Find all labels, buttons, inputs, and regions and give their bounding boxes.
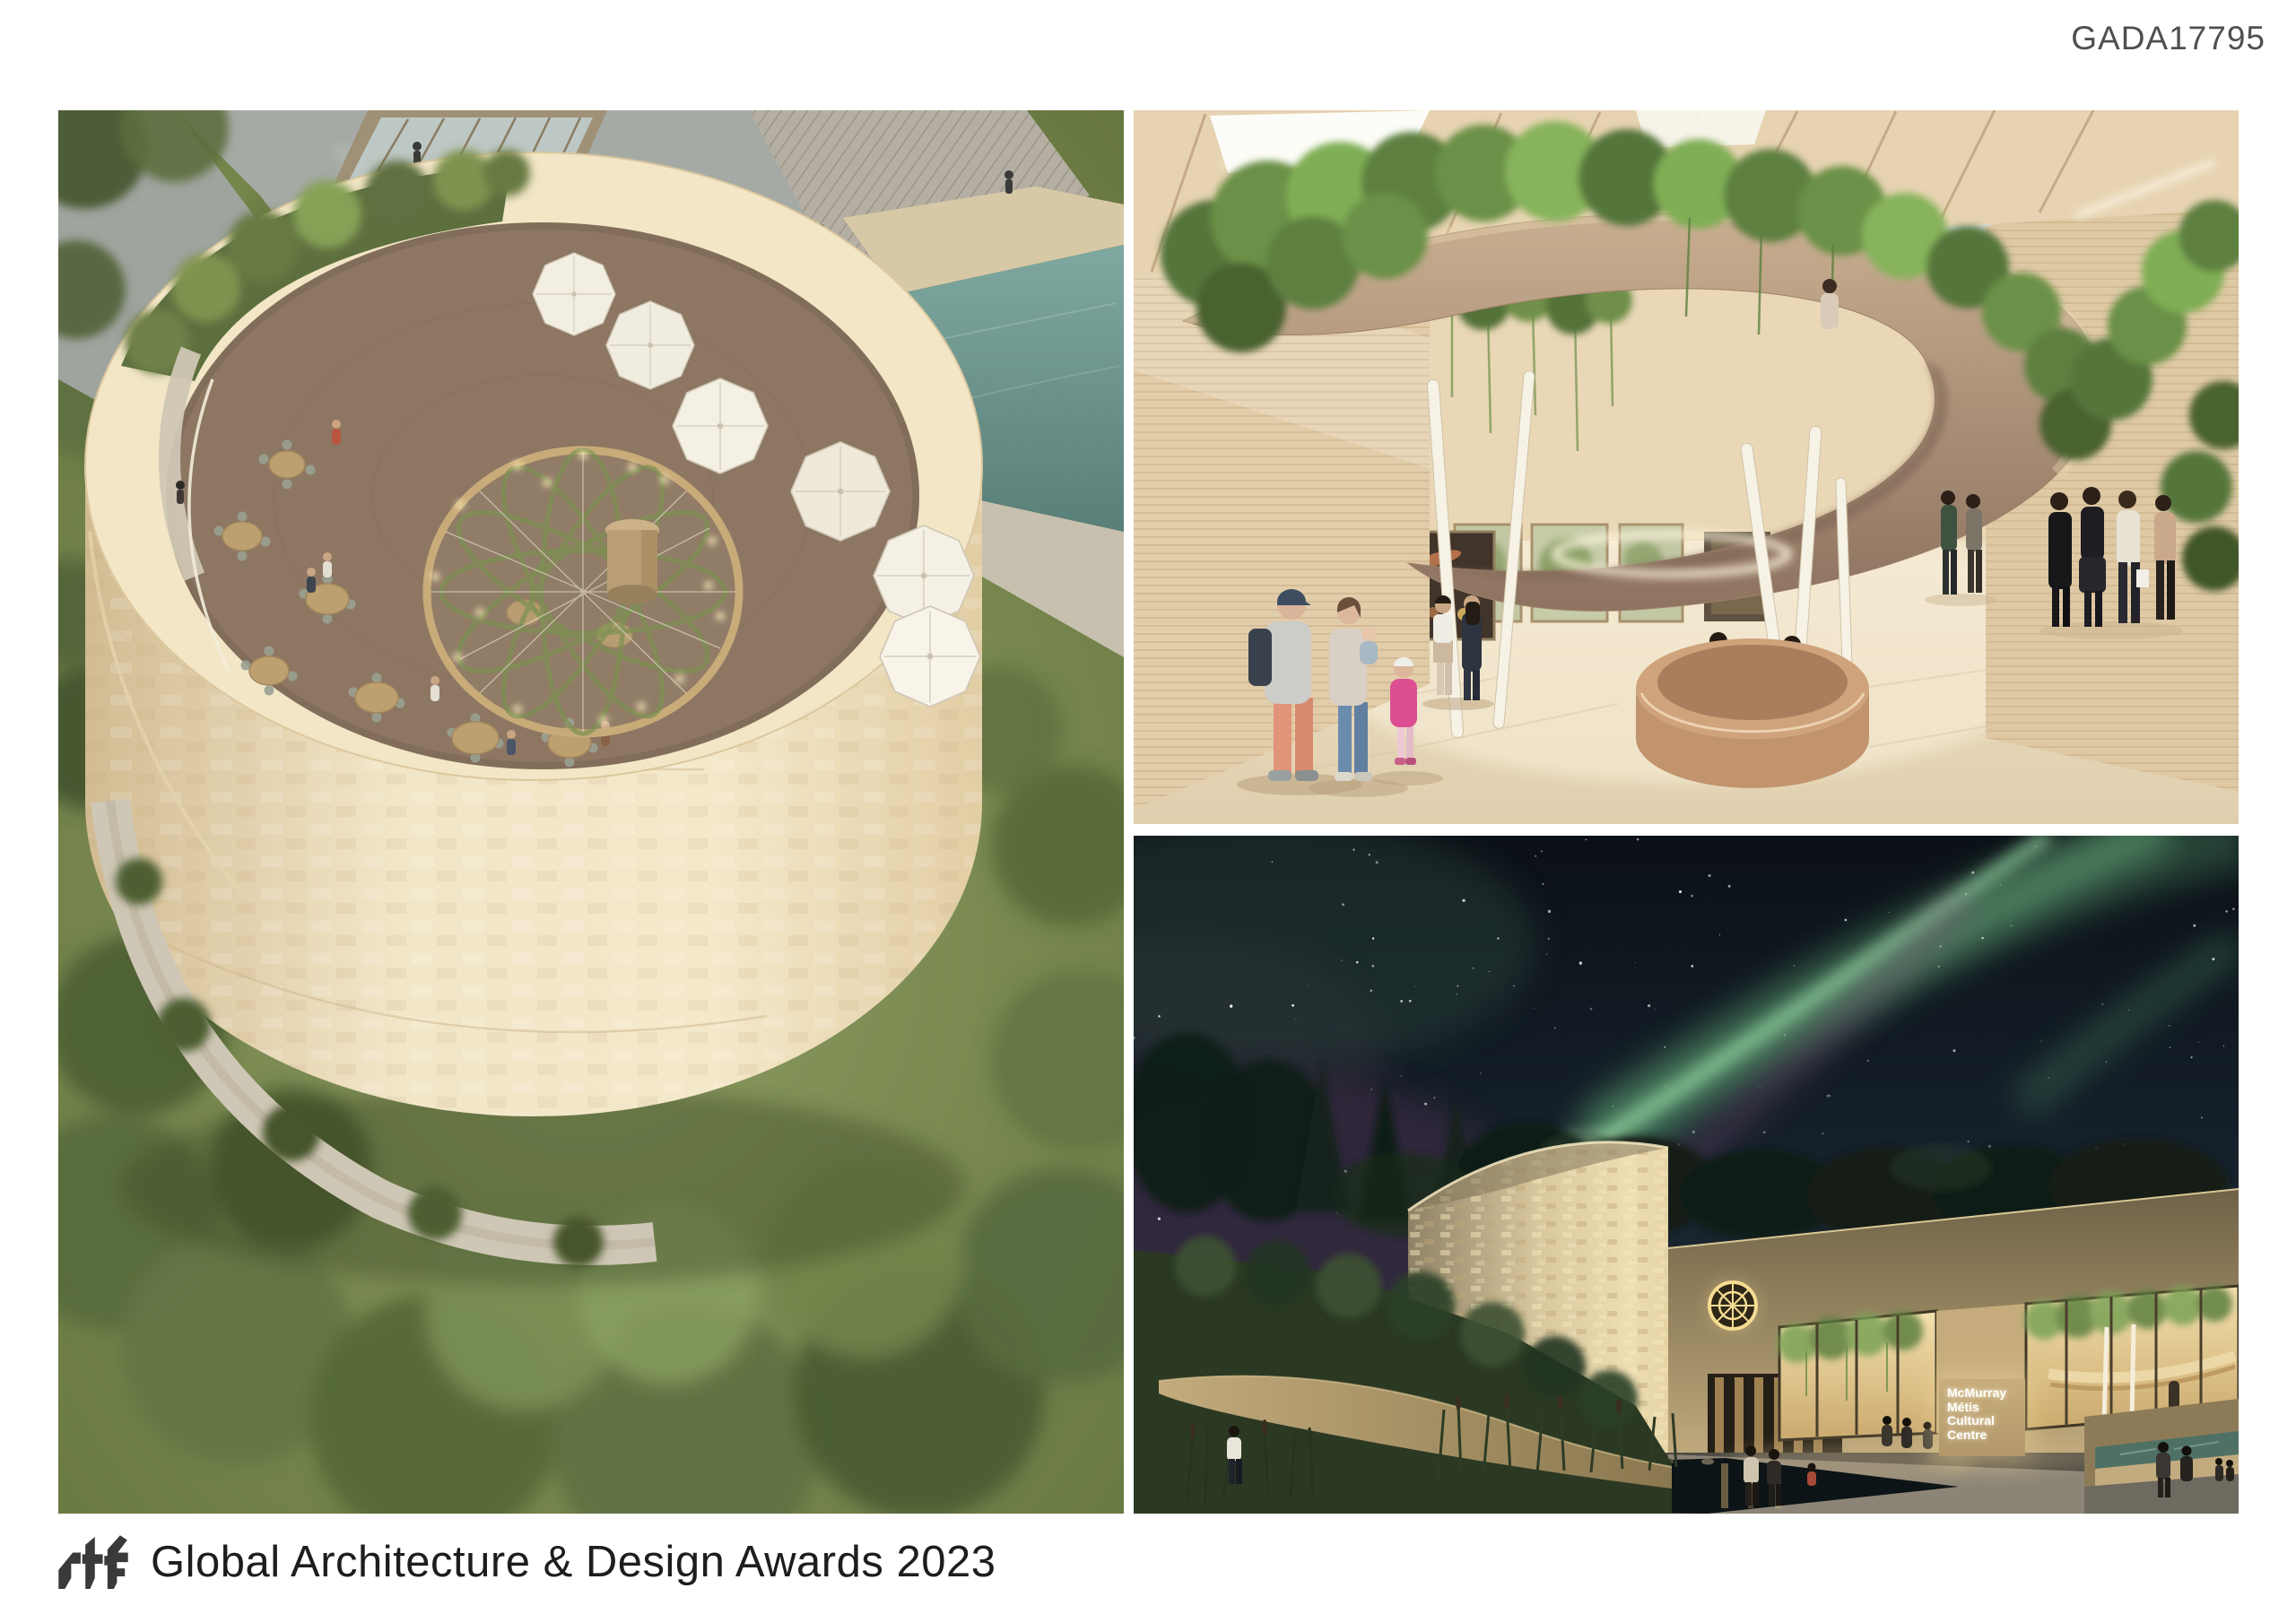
sign-line: Centre [1947, 1428, 2017, 1443]
person-on-ramp [1821, 279, 1839, 329]
sign-line: Métis [1947, 1401, 2017, 1415]
submission-code: GADA17795 [2071, 20, 2266, 57]
interior-render-graphic [1134, 110, 2239, 824]
rtf-logo [54, 1532, 133, 1594]
sign-line: McMurray [1947, 1386, 2017, 1401]
medallion-emblem [1706, 1279, 1760, 1332]
building-sign: McMurray Métis Cultural Centre [1939, 1379, 2025, 1456]
render-night-aurora: McMurray Métis Cultural Centre [1134, 836, 2239, 1514]
aerial-render-graphic [58, 110, 1124, 1514]
sign-line: Cultural [1947, 1414, 2017, 1428]
reception-desk [1636, 632, 1869, 788]
night-render-graphic [1134, 836, 2239, 1514]
glass-facade-left [1778, 1311, 1936, 1440]
render-aerial-rooftop [58, 110, 1124, 1514]
render-interior-atrium [1134, 110, 2239, 824]
presentation-board: GADA17795 [0, 0, 2296, 1623]
trellis-canopy [427, 448, 739, 735]
award-title: Global Architecture & Design Awards 2023 [151, 1537, 996, 1587]
